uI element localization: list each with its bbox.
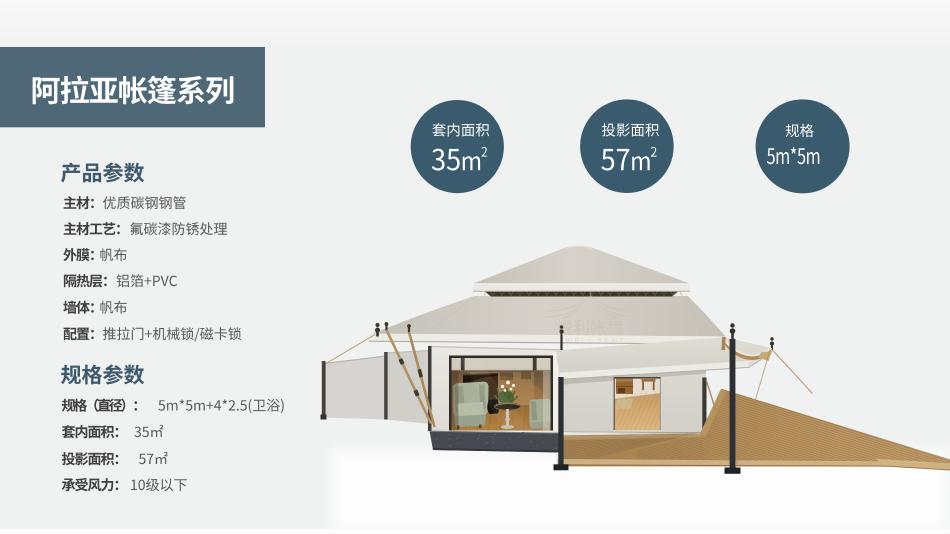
svg-text:WELL TENT: WELL TENT bbox=[565, 337, 626, 346]
